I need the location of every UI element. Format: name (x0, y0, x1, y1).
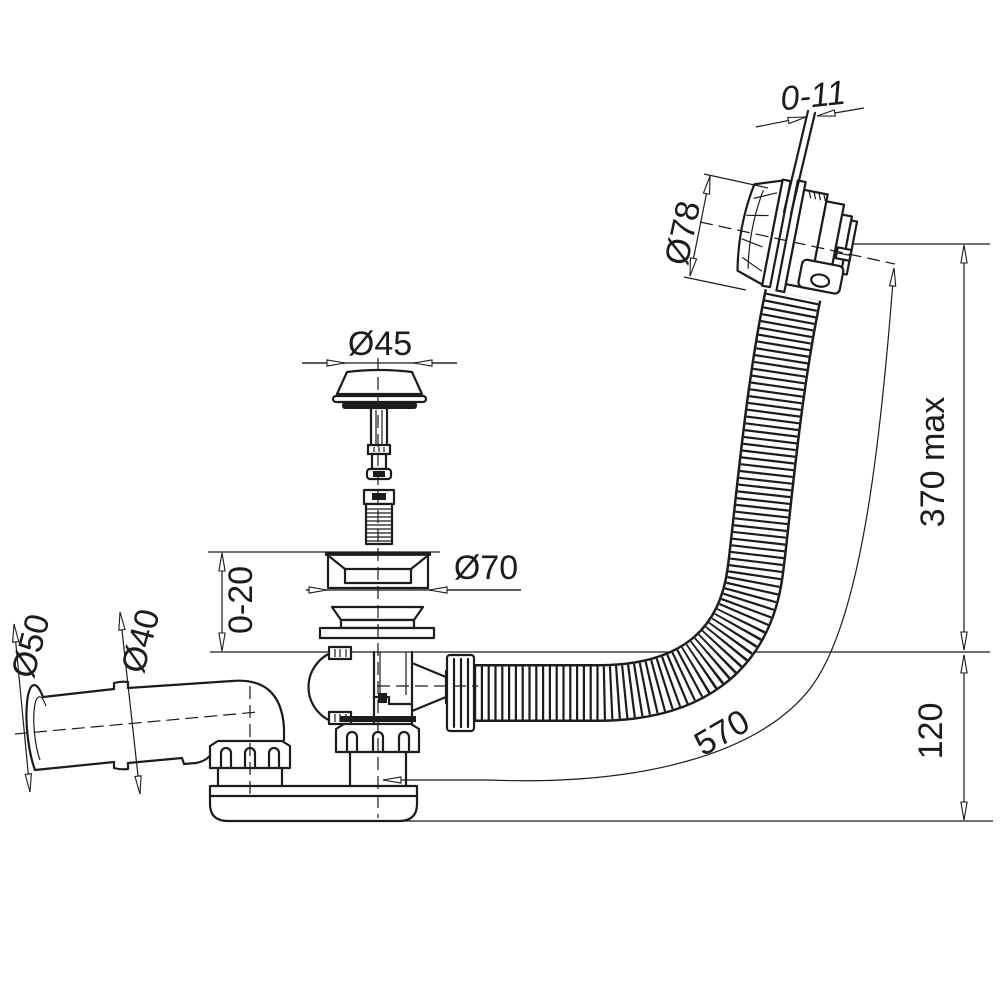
plug-cap (333, 370, 426, 409)
dim-label-plug: Ø45 (348, 325, 412, 363)
plug-stem-line (372, 454, 386, 469)
dim-d78-ext-top (704, 174, 768, 188)
outlet-pipe-line (114, 762, 128, 769)
drawing-canvas: 0-11 Ø78 Ø45 Ø70 0-20 Ø50 Ø40 370 max 12… (0, 0, 1000, 1000)
tee-body-line (412, 697, 446, 711)
outlet-pipe-line (114, 682, 128, 689)
dim-label-hose-length: 570 (688, 702, 756, 763)
dim-label-trap-height: 120 (912, 703, 950, 760)
dim-d78-ext-bottom (684, 277, 746, 290)
technical-drawing-bath-waste: 0-11 Ø78 Ø45 Ø70 0-20 Ø50 Ø40 370 max 12… (0, 0, 1000, 1000)
dim-label-flange: Ø70 (454, 549, 518, 587)
dim-0-11-arrow-left (756, 117, 806, 127)
outlet-pipe-line (43, 689, 114, 697)
threaded-insert (364, 490, 394, 544)
plug-seat (378, 693, 387, 703)
dim-label-base-adjust: 0-20 (222, 566, 260, 634)
outlet-pipe-line (128, 681, 232, 688)
dim-label-outlet-socket: Ø50 (4, 610, 57, 682)
trap-cup-line (210, 786, 417, 821)
plug-stem (367, 408, 391, 479)
outlet-pipe-line (34, 697, 46, 760)
plug-cap-line (333, 396, 426, 402)
outlet-pipe-line (35, 762, 114, 770)
threaded-insert-line (366, 504, 392, 544)
flexible-hose (474, 295, 793, 693)
flexible-hose-line (474, 295, 793, 693)
plug-cap-line (337, 370, 422, 394)
dim-label-outlet-pipe: Ø40 (114, 605, 167, 677)
outlet-pipe-line (26, 685, 43, 770)
dim-label-height-max: 370 max (914, 397, 952, 527)
outlet-pipe-line (128, 742, 216, 764)
seal-washers (320, 607, 434, 638)
dim-label-overflow-gap: 0-11 (778, 74, 847, 119)
hose-nut (447, 655, 474, 731)
dim-label-overflow-head: Ø78 (658, 198, 709, 269)
dimension-labels: 0-11 Ø78 Ø45 Ø70 0-20 Ø50 Ø40 370 max 12… (4, 74, 952, 764)
plug-stem-line (371, 408, 387, 449)
centerline-outlet-pipe (15, 712, 258, 734)
trap-cup (210, 786, 417, 821)
plug-seal (342, 402, 417, 409)
reference-lines (208, 244, 993, 821)
plug-stem-line (373, 471, 385, 477)
outlet-pipe-line (232, 681, 284, 740)
tee-body-line (412, 663, 446, 677)
threaded-insert-line (372, 493, 386, 500)
seal-washers-line (320, 628, 434, 638)
